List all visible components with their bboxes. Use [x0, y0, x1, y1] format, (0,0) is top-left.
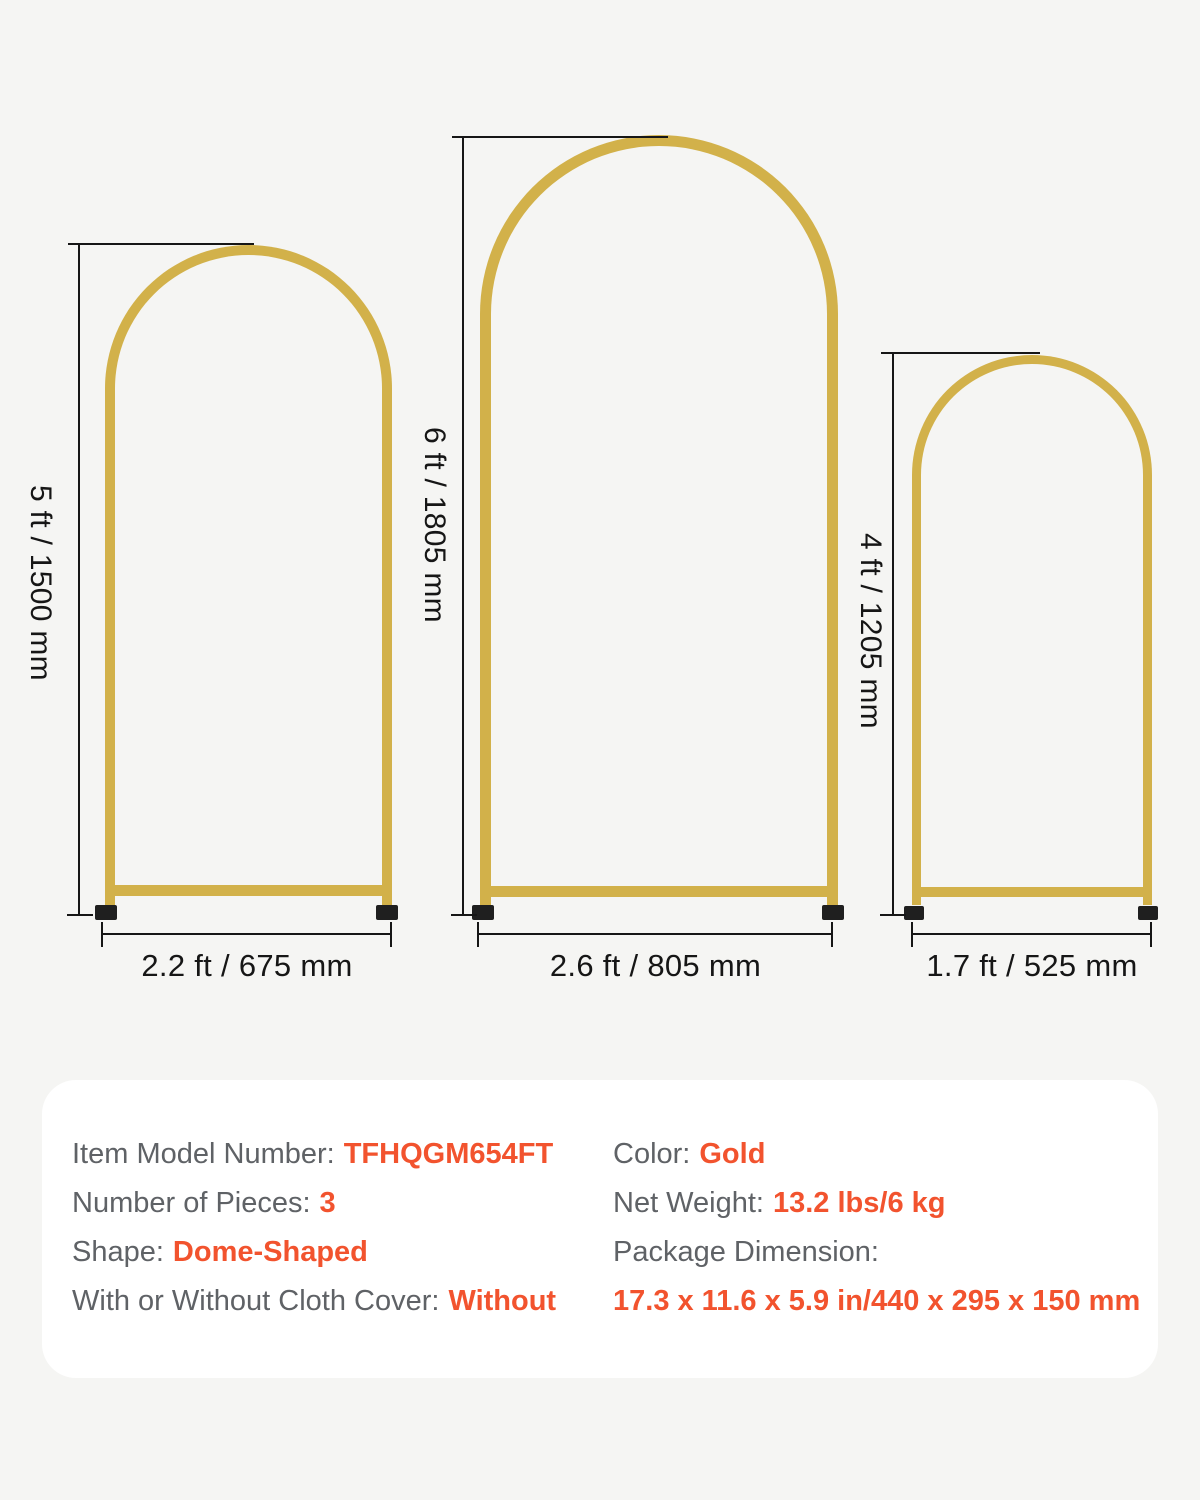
spec-card: Item Model Number:TFHQGM654FT Number of …: [42, 1080, 1158, 1378]
arch-small-crossbar: [918, 887, 1146, 897]
spec-value: 17.3 x 11.6 x 5.9 in/440 x 295 x 150 mm: [613, 1285, 1140, 1317]
spec-row-shape: Shape:Dome-Shaped: [72, 1228, 556, 1277]
height-label: 6 ft / 1805 mm: [419, 410, 451, 640]
spec-label: Shape:: [72, 1236, 164, 1268]
spec-value: Without: [448, 1285, 556, 1317]
spec-label: Number of Pieces:: [72, 1187, 311, 1219]
height-label: 5 ft / 1500 mm: [25, 468, 57, 698]
spec-label: Item Model Number:: [72, 1138, 335, 1170]
width-dim-left-tick: [101, 922, 103, 947]
arch-small-foot-right: [1138, 906, 1158, 920]
spec-value: Gold: [699, 1138, 765, 1170]
width-dim-right-tick: [831, 922, 833, 947]
arch-large-frame: [480, 135, 838, 905]
height-label: 4 ft / 1205 mm: [855, 516, 887, 746]
height-dim-line: [78, 243, 80, 916]
height-dim-top-tick: [881, 352, 1040, 354]
width-dim-right-tick: [390, 922, 392, 947]
height-dim-top-tick: [452, 136, 668, 138]
arch-small-frame: [912, 355, 1152, 905]
arch-large-foot-left: [472, 905, 494, 920]
width-dim-left-tick: [911, 922, 913, 947]
height-dim-bottom-tick: [880, 914, 906, 916]
height-dim-bottom-tick: [67, 914, 93, 916]
arch-medium-crossbar: [110, 885, 387, 896]
spec-row-color: Color:Gold: [613, 1130, 1140, 1179]
width-label: 2.2 ft / 675 mm: [102, 948, 392, 984]
width-dim-left-tick: [477, 922, 479, 947]
spec-row-package-dimension-value: 17.3 x 11.6 x 5.9 in/440 x 295 x 150 mm: [613, 1277, 1140, 1326]
width-dim-line: [101, 933, 392, 935]
width-label: 2.6 ft / 805 mm: [478, 948, 833, 984]
width-label: 1.7 ft / 525 mm: [912, 948, 1152, 984]
spec-row-package-dimension-label: Package Dimension:: [613, 1228, 1140, 1277]
spec-value: 3: [320, 1187, 336, 1219]
width-dim-line: [477, 933, 833, 935]
product-dimension-diagram: 5 ft / 1500 mm 2.2 ft / 675 mm 6 ft / 18…: [0, 0, 1200, 1500]
spec-label: With or Without Cloth Cover:: [72, 1285, 439, 1317]
width-dim-line: [911, 933, 1152, 935]
spec-value: Dome-Shaped: [173, 1236, 368, 1268]
spec-row-cloth-cover: With or Without Cloth Cover:Without: [72, 1277, 556, 1326]
spec-value: TFHQGM654FT: [344, 1138, 553, 1170]
spec-row-net-weight: Net Weight:13.2 lbs/6 kg: [613, 1179, 1140, 1228]
width-dim-right-tick: [1150, 922, 1152, 947]
spec-row-model: Item Model Number:TFHQGM654FT: [72, 1130, 556, 1179]
spec-column-left: Item Model Number:TFHQGM654FT Number of …: [72, 1130, 556, 1326]
spec-value: 13.2 lbs/6 kg: [773, 1187, 946, 1219]
spec-label: Package Dimension:: [613, 1236, 879, 1268]
spec-label: Net Weight:: [613, 1187, 764, 1219]
spec-row-pieces: Number of Pieces:3: [72, 1179, 556, 1228]
arch-medium-foot-left: [95, 905, 117, 920]
spec-column-right: Color:Gold Net Weight:13.2 lbs/6 kg Pack…: [613, 1130, 1140, 1326]
arch-medium-foot-right: [376, 905, 398, 920]
arch-medium-frame: [105, 245, 392, 905]
height-dim-line: [462, 136, 464, 916]
height-dim-bottom-tick: [451, 914, 477, 916]
arch-small-foot-left: [904, 906, 924, 920]
height-dim-line: [892, 352, 894, 916]
arch-large-foot-right: [822, 905, 844, 920]
arch-large-crossbar: [486, 886, 832, 897]
spec-label: Color:: [613, 1138, 690, 1170]
height-dim-top-tick: [68, 243, 254, 245]
